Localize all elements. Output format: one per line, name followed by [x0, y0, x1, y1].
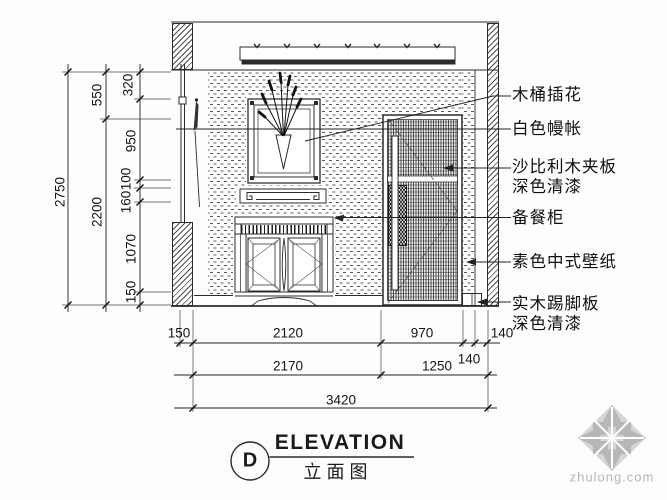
- dim-2200: 2200: [90, 197, 104, 227]
- dim-550: 550: [90, 84, 104, 107]
- dim-160: 160: [119, 191, 133, 214]
- dim-1070: 1070: [124, 234, 138, 264]
- dim-970: 970: [411, 326, 434, 340]
- title-elevation: ELEVATION: [275, 431, 406, 455]
- dim-320: 320: [121, 74, 135, 97]
- callout-flower: 木桶插花: [512, 86, 582, 105]
- dim-1250: 1250: [422, 359, 452, 373]
- dim-950: 950: [124, 130, 138, 153]
- dim-2120: 2120: [273, 326, 303, 340]
- callout-skirting-line2: 深色清漆: [512, 315, 582, 334]
- drawing-linework: [0, 0, 667, 500]
- dim-150-bottom: 150: [168, 326, 191, 340]
- flower-frame: [248, 73, 320, 183]
- window-curtain: [179, 64, 200, 222]
- flower-buds: [259, 73, 301, 117]
- structure-lines: [171, 22, 499, 306]
- dim-140-row1: 140: [491, 326, 514, 340]
- dim-150-left: 150: [124, 281, 138, 304]
- callout-sapele-line1: 沙比利木夹板: [512, 158, 617, 177]
- door: [383, 70, 475, 306]
- callout-skirting-line1: 实木踢脚板: [512, 295, 600, 314]
- callout-sapele-line2: 深色清漆: [512, 178, 582, 197]
- title-bubble-letter: D: [243, 450, 257, 473]
- dim-total-height: 2750: [53, 177, 67, 207]
- elevation-drawing-canvas: 2750 550 2200 320 950 100 160 1070 150 1…: [0, 0, 667, 500]
- callout-wallpaper: 素色中式壁纸: [512, 253, 617, 272]
- watermark-text: zhulong.com: [570, 470, 655, 485]
- dim-100: 100: [119, 168, 133, 191]
- callout-curtain: 白色幔帐: [512, 120, 582, 139]
- dim-2170: 2170: [273, 359, 303, 373]
- callout-cabinet: 备餐柜: [512, 209, 565, 228]
- greek-key-ornament: [240, 189, 326, 203]
- dim-140-row2: 140: [458, 352, 481, 366]
- title-elevation-cn: 立面图: [304, 458, 373, 484]
- dim-3420: 3420: [326, 393, 356, 407]
- callout-leaders: [176, 96, 511, 306]
- cabinet: [235, 217, 333, 306]
- curtain-rail: [240, 44, 455, 64]
- watermark-logo: [578, 405, 646, 471]
